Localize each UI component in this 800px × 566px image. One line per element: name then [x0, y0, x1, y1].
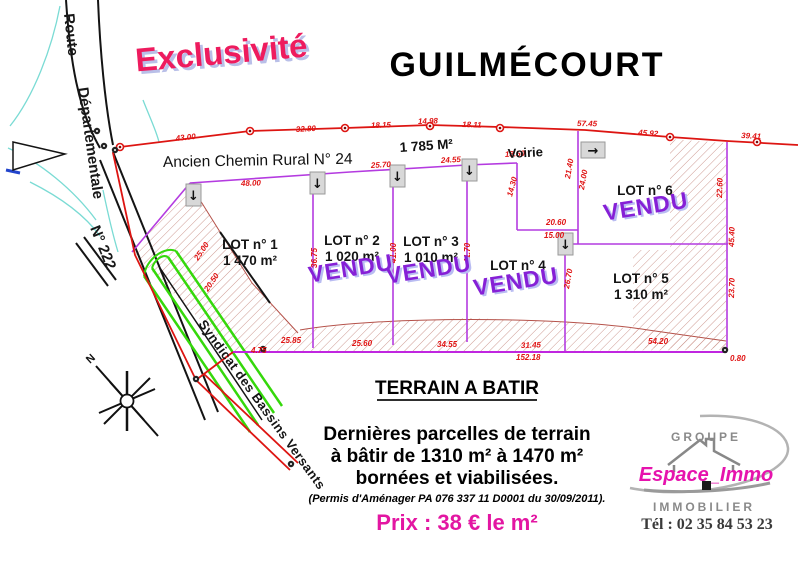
road-label-route: Route: [60, 13, 81, 57]
black-survey-point-core: [114, 149, 116, 151]
footer-heading: TERRAIN A BATIR: [375, 378, 539, 399]
dimension-label: 32.80: [296, 124, 317, 134]
dimension-label: 48.00: [240, 178, 262, 188]
dimension-label: 152.18: [516, 353, 541, 362]
voirie-area-label: 1 785 M²: [399, 136, 454, 155]
red-survey-point-core: [249, 130, 252, 133]
dimension-label: 25.85: [280, 336, 302, 345]
dimension-label: 24.55: [440, 155, 462, 165]
red-survey-point-core: [344, 127, 347, 130]
footer-line2: à bâtir de 1310 m² à 1470 m²: [331, 446, 583, 467]
dimension-label: 39.41: [741, 131, 762, 141]
footer-line3: bornées et viabilisées.: [356, 468, 559, 489]
north-label: N: [84, 352, 98, 366]
dimension-label: 14.98: [418, 116, 439, 126]
red-survey-point-core: [669, 136, 672, 139]
black-survey-point-core: [195, 378, 197, 380]
road-label-departementale: Départementale: [74, 86, 106, 200]
entrance-arrow-icon: ↓: [464, 164, 475, 179]
dimension-label: 43.00: [174, 132, 196, 143]
page-title: GUILMÉCOURT: [389, 46, 664, 84]
dimension-label: 18.11: [462, 120, 482, 130]
dimension-label: 45.40: [727, 226, 737, 248]
dimension-label: 31.45: [521, 340, 542, 350]
logo-square: [702, 481, 711, 490]
dimension-label: 15.00: [544, 231, 565, 240]
red-survey-point-core: [119, 146, 122, 149]
dimension-label: 25.60: [351, 339, 373, 348]
dimension-label: 4.75: [250, 346, 267, 355]
red-survey-point-core: [756, 141, 759, 144]
lot-name: LOT n° 2: [324, 233, 380, 248]
lot-name: LOT n° 5: [613, 271, 669, 286]
banner-exclusivite: Exclusivité: [134, 27, 309, 79]
black-survey-point-core: [724, 349, 726, 351]
entrance-arrow-icon: ↓: [312, 177, 323, 192]
logo-immobilier: IMMOBILIER: [653, 500, 755, 514]
footer-price: Prix : 38 € le m²: [376, 510, 537, 535]
lot-name: LOT n° 1: [222, 237, 278, 252]
compass-rose: [96, 366, 158, 436]
footer-block: TERRAIN A BATIR Dernières parcelles de t…: [309, 378, 606, 535]
dimension-label: 20.60: [545, 218, 567, 227]
dimension-label: 54.20: [648, 337, 669, 346]
dimension-label: 45.92: [637, 128, 659, 138]
red-survey-point-core: [499, 127, 502, 130]
dimension-label: 34.55: [437, 340, 458, 349]
footer-line1: Dernières parcelles de terrain: [323, 424, 590, 445]
dimension-label: 0.80: [730, 354, 746, 363]
logo-phone: Tél : 02 35 84 53 23: [641, 516, 773, 533]
lot-area: 1 470 m²: [223, 253, 278, 268]
entrance-arrow-icon: ↓: [392, 170, 403, 185]
dimension-label: 25.70: [370, 160, 392, 170]
dimension-label: 18.15: [371, 120, 392, 130]
black-survey-point-core: [290, 463, 292, 465]
agency-logo: GROUPE Espace_Immo IMMOBILIER Tél : 02 3…: [630, 416, 788, 533]
lot-name: LOT n° 3: [403, 234, 459, 249]
logo-groupe: GROUPE: [671, 430, 741, 444]
black-survey-point-core: [103, 145, 105, 147]
voirie-label: Voirie: [507, 144, 543, 161]
dimension-label: 23.70: [727, 277, 737, 299]
dimension-label: 57.45: [577, 119, 598, 128]
footer-permit: (Permis d'Aménager PA 076 337 11 D0001 d…: [309, 493, 606, 505]
dimension-label: 22.60: [715, 177, 725, 199]
entrance-arrow-icon: ↓: [560, 238, 571, 253]
entrance-arrow-icon: →: [588, 144, 599, 159]
site-plan: N ↓↓↓↓↓→ 43.0032.8018.1514.9818.1157.454…: [0, 0, 800, 566]
entrance-arrow-icon: ↓: [188, 189, 199, 204]
ancien-chemin-label: Ancien Chemin Rural N° 24: [163, 151, 353, 171]
lot-area: 1 310 m²: [614, 287, 669, 302]
flyer-page: N ↓↓↓↓↓→ 43.0032.8018.1514.9818.1157.454…: [0, 0, 800, 566]
